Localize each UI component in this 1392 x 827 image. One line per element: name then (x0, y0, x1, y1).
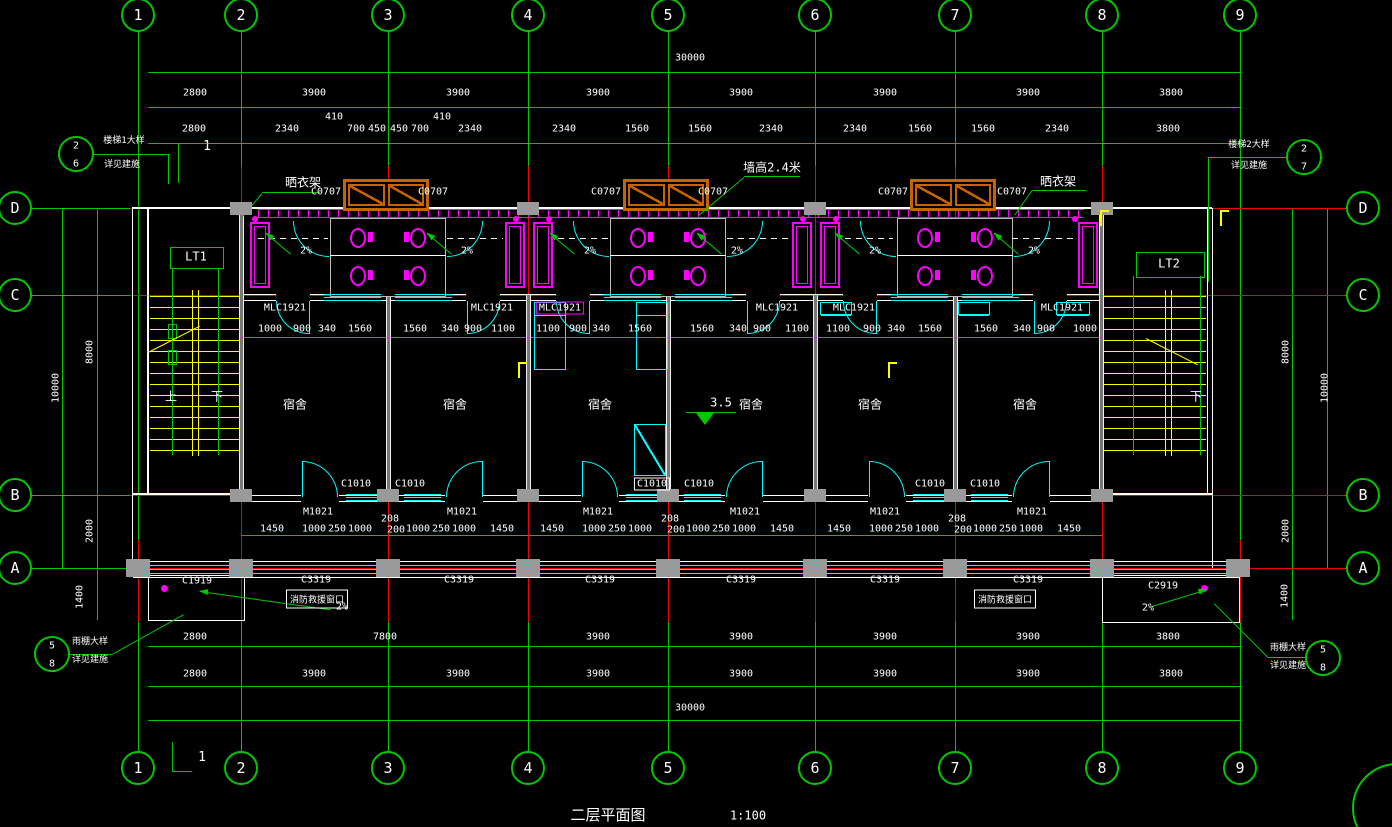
toilet-tank-icon (404, 270, 409, 280)
toilet-tank-icon (971, 232, 976, 242)
stair-label: LT1 (185, 250, 207, 263)
toilet-tank-icon (684, 232, 689, 242)
callout-text: 楼梯1大样 (103, 137, 144, 147)
callout-number: 2 (73, 141, 79, 152)
dim-text: 410 (325, 112, 343, 123)
dim-text: 3900 (873, 632, 897, 643)
slope-label: 2% (584, 246, 596, 257)
drying-rack-label: 晒衣架 (1040, 175, 1076, 188)
column (944, 489, 966, 502)
section-mark-line (178, 143, 198, 144)
dim-tick (528, 101, 529, 113)
grid-bubble-bottom-5: 5 (651, 751, 685, 785)
dim-text: 3900 (1016, 632, 1040, 643)
wall-stair-left-south (132, 493, 241, 495)
leader-line (744, 176, 800, 177)
dim-line-total-top (148, 72, 1240, 73)
roof-drain-icon (161, 585, 168, 592)
stair-flight-line (1200, 276, 1201, 455)
room-window-band (971, 494, 1008, 501)
callout-sheet: 8 (1320, 663, 1326, 674)
column (803, 559, 827, 577)
dim-text: 3800 (1156, 632, 1180, 643)
dim-text: 1560 (628, 324, 652, 335)
window-tag: C3319 (870, 575, 900, 586)
high-window-pair (623, 179, 709, 211)
dim-text: 10000 (51, 373, 62, 403)
wall-height-label: 墙高2.4米 (743, 161, 801, 174)
toilet-icon (690, 266, 706, 286)
dim-text: 340 (441, 324, 459, 335)
column (229, 559, 253, 577)
dim-text: 1560 (908, 124, 932, 135)
window-tag: C0707 (418, 187, 448, 198)
dim-line-total-bottom (148, 720, 1240, 721)
slope-label: 2% (1142, 603, 1154, 614)
dim-text: 8000 (1281, 340, 1292, 364)
door-leaf (747, 301, 748, 334)
window-tag: C3319 (726, 575, 756, 586)
dim-text: 340 (1013, 324, 1031, 335)
toilet-icon (977, 266, 993, 286)
dim-tick (815, 137, 816, 149)
dim-text: 3800 (1156, 124, 1180, 135)
grid-bubble-bottom-7: 7 (938, 751, 972, 785)
drain-dot-icon (252, 216, 258, 222)
grid-bubble-bottom-2: 2 (224, 751, 258, 785)
slope-label: 2% (1028, 246, 1040, 257)
drain-dot-icon (513, 216, 519, 222)
dim-text: 1000 (732, 524, 756, 535)
room-label-dorm: 宿舍 (443, 398, 467, 411)
dim-tick (1240, 101, 1241, 113)
grid-bubble-left-C: C (0, 278, 32, 312)
door-tag: M1021 (870, 507, 900, 518)
shower-cabinet (1078, 222, 1098, 288)
column (377, 489, 399, 502)
dim-line-top-detail (148, 143, 1240, 144)
dim-tick (388, 680, 389, 692)
dim-text: 3900 (586, 669, 610, 680)
window-cell-icon (915, 184, 952, 206)
grid-bubble-bottom-3: 3 (371, 751, 405, 785)
room-window-band (404, 494, 441, 501)
dim-text: 3900 (446, 88, 470, 99)
dim-text: 1100 (491, 324, 515, 335)
grid-bubble-left-D: D (0, 191, 32, 225)
column (1090, 559, 1114, 577)
dim-text: 900 (464, 324, 482, 335)
dim-tick (138, 101, 139, 113)
door-swing-arc (446, 461, 482, 497)
dim-tick (528, 680, 529, 692)
stair-down-label: 下 (211, 390, 223, 403)
door-tag: M1021 (447, 507, 477, 518)
dim-text: 900 (293, 324, 311, 335)
window-tag: C1010 (684, 479, 714, 490)
corner-flashing-icon (888, 362, 897, 378)
axis-red-col-1 (138, 540, 139, 622)
door-leaf (1049, 461, 1050, 497)
dim-text: 1000 (1073, 324, 1097, 335)
balcony-dashed-line (447, 238, 503, 239)
high-window-pair (343, 179, 429, 211)
dim-text: 1000 (452, 524, 476, 535)
dim-text: 3900 (586, 632, 610, 643)
dim-text: 3800 (1159, 88, 1183, 99)
window-tag: C3319 (1013, 575, 1043, 586)
slope-arrow-icon (550, 233, 575, 254)
column (1091, 489, 1113, 502)
dim-text: 3900 (873, 669, 897, 680)
dim-text: 208 (948, 514, 966, 525)
dim-text: 1000 (869, 524, 893, 535)
door-tag: M1021 (583, 507, 613, 518)
dim-text: 1100 (536, 324, 560, 335)
corner-detail-bubble (1352, 763, 1392, 827)
window-tag: MLC1921 (833, 303, 875, 314)
toilet-icon (630, 266, 646, 286)
dim-line-top-bays (148, 107, 1240, 108)
window-tag: C1010 (915, 479, 945, 490)
dim-tick (1240, 680, 1241, 692)
dim-tick (668, 680, 669, 692)
dim-text: 700 (347, 124, 365, 135)
grid-bubble-bottom-8: 8 (1085, 751, 1119, 785)
column (516, 559, 540, 577)
stair-flight-line (1133, 276, 1134, 455)
dim-tick (955, 680, 956, 692)
dim-text: 1000 (348, 524, 372, 535)
dim-text: 2800 (183, 88, 207, 99)
dim-text: 450 (368, 124, 386, 135)
dim-text: 3900 (302, 669, 326, 680)
window-tag: MLC1921 (1041, 303, 1083, 314)
balcony-dashed-line (727, 238, 789, 239)
dim-text: 340 (318, 324, 336, 335)
stair-rail-left (192, 290, 199, 456)
dim-text: 1000 (406, 524, 430, 535)
dim-text: 8000 (85, 340, 96, 364)
door-leaf (1034, 301, 1035, 334)
toilet-tank-icon (648, 232, 653, 242)
window-tag: C1010 (634, 478, 670, 491)
dim-text: 1000 (915, 524, 939, 535)
door-swing-arc (582, 461, 618, 497)
dim-tick (668, 137, 669, 149)
dim-text: 1560 (971, 124, 995, 135)
toilet-tank-icon (935, 232, 940, 242)
grid-bubble-top-2: 2 (224, 0, 258, 32)
dim-text: 2340 (843, 124, 867, 135)
door-leaf (869, 461, 870, 497)
callout-text: 雨棚大样 (72, 638, 108, 648)
window-tag: C3319 (301, 575, 331, 586)
door-swing-arc (869, 461, 905, 497)
dim-text-total: 30000 (675, 53, 705, 64)
toilet-icon (350, 228, 366, 248)
dim-text: 1560 (918, 324, 942, 335)
drain-dot-icon (800, 216, 806, 222)
dim-text: 1400 (1280, 584, 1291, 608)
dim-tick (668, 101, 669, 113)
callout-sheet: 8 (49, 659, 55, 670)
dim-text: 1560 (625, 124, 649, 135)
dim-text: 3800 (1159, 669, 1183, 680)
callout-number: 2 (1301, 144, 1307, 155)
fire-rescue-window-label: 消防救援窗口 (974, 590, 1036, 609)
window-tag: C1919 (182, 576, 212, 587)
dim-text: 410 (433, 112, 451, 123)
floor-plan-canvas: 1 2 3 4 5 6 7 8 9 1 2 3 4 5 6 7 8 9 D C … (0, 0, 1392, 827)
wall-stair-right-south (1102, 493, 1213, 495)
stair-rail-right (1165, 290, 1172, 456)
dim-text: 1000 (628, 524, 652, 535)
corner-flashing-icon (1100, 210, 1109, 226)
callout-number: 5 (1320, 645, 1326, 656)
column (804, 489, 826, 502)
toilet-tank-icon (368, 270, 373, 280)
door-leaf (589, 301, 590, 334)
column (376, 559, 400, 577)
window-tag: MLC1921 (536, 302, 584, 315)
toilet-room-divider (897, 255, 1013, 256)
combo-window-band (324, 294, 381, 301)
grid-bubble-top-7: 7 (938, 0, 972, 32)
toilet-tank-icon (368, 232, 373, 242)
window-tag: MLC1921 (756, 303, 798, 314)
window-tag: MLC1921 (264, 303, 306, 314)
column (1226, 559, 1250, 577)
grid-bubble-top-5: 5 (651, 0, 685, 32)
dim-text: 10000 (1320, 373, 1331, 403)
dim-line-left-inner (97, 208, 98, 620)
combo-window-band (604, 294, 661, 301)
toilet-room (610, 218, 726, 297)
door-tag: M1021 (730, 507, 760, 518)
toilet-tank-icon (684, 270, 689, 280)
door-swing-arc (1013, 461, 1049, 497)
callout-text: 详见建施 (72, 656, 108, 666)
wall-east-outer (1212, 208, 1213, 568)
wall-col-6 (813, 295, 818, 495)
dim-text: 3900 (729, 88, 753, 99)
level-marker-icon (696, 413, 714, 425)
grid-bubble-top-6: 6 (798, 0, 832, 32)
corner-flashing-icon (1220, 210, 1229, 226)
fire-rescue-window-label: 消防救援窗口 (286, 590, 348, 609)
window-tag: C3319 (444, 575, 474, 586)
dim-tick (815, 680, 816, 692)
door-leaf (482, 461, 483, 497)
grid-bubble-top-4: 4 (511, 0, 545, 32)
dim-text: 340 (729, 324, 747, 335)
window-tag: C0707 (591, 187, 621, 198)
grid-bubble-left-B: B (0, 478, 32, 512)
grid-bubble-right-B: B (1346, 478, 1380, 512)
dim-text: 250 (895, 524, 913, 535)
dim-tick (388, 101, 389, 113)
door-tag: M1021 (1017, 507, 1047, 518)
room-label-dorm: 宿舍 (1013, 398, 1037, 411)
dim-text: 450 (390, 124, 408, 135)
dim-text: 208 (661, 514, 679, 525)
dim-text: 1000 (973, 524, 997, 535)
dim-line-window-row (241, 337, 1102, 338)
grid-bubble-right-D: D (1346, 191, 1380, 225)
drain-dot-icon (1072, 216, 1078, 222)
grid-bubble-top-8: 8 (1085, 0, 1119, 32)
corner-flashing-icon (518, 362, 527, 378)
stair-flight-line (218, 268, 219, 455)
dim-text: 1560 (688, 124, 712, 135)
dim-text: 900 (753, 324, 771, 335)
dim-text: 1450 (827, 524, 851, 535)
window-tag: C0707 (698, 187, 728, 198)
pillow-icon (958, 302, 990, 315)
toilet-icon (410, 228, 426, 248)
dim-text: 250 (712, 524, 730, 535)
bed-icon (636, 302, 668, 370)
grid-bubble-bottom-6: 6 (798, 751, 832, 785)
dim-line-left-outer (62, 208, 63, 568)
slope-label: 2% (869, 246, 881, 257)
callout-number: 5 (49, 641, 55, 652)
grid-bubble-bottom-9: 9 (1223, 751, 1257, 785)
stair-down-label: 下 (1190, 390, 1202, 403)
dim-line-right-inner (1292, 208, 1293, 620)
dim-text: 1560 (403, 324, 427, 335)
corridor-ribbon-window (133, 561, 1240, 578)
slope-label: 2% (731, 246, 743, 257)
window-tag: C1010 (970, 479, 1000, 490)
dim-tick (955, 101, 956, 113)
stair-up-label: 上 (165, 390, 177, 403)
column (656, 559, 680, 577)
toilet-tank-icon (971, 270, 976, 280)
dim-text: 1450 (490, 524, 514, 535)
room-window-band (684, 494, 721, 501)
grid-bubble-top-9: 9 (1223, 0, 1257, 32)
dim-text: 1100 (785, 324, 809, 335)
grid-bubble-bottom-1: 1 (121, 751, 155, 785)
window-tag: C2919 (1148, 581, 1178, 592)
section-mark-number: 1 (203, 140, 211, 154)
dim-text: 900 (863, 324, 881, 335)
dim-text: 1560 (690, 324, 714, 335)
callout-sheet: 6 (73, 159, 79, 170)
slope-label: 2% (461, 246, 473, 257)
wall-col-4 (526, 295, 531, 495)
section-mark-line (172, 742, 173, 772)
door-swing-arc (726, 461, 762, 497)
window-cell-icon (348, 184, 385, 206)
dim-text: 1560 (348, 324, 372, 335)
dim-text: 2000 (85, 519, 96, 543)
dim-text: 1450 (260, 524, 284, 535)
room-label-dorm: 宿舍 (283, 398, 307, 411)
stair-arrow-mark (168, 350, 177, 365)
room-label-dorm: 宿舍 (858, 398, 882, 411)
drawing-title: 二层平面图 (570, 807, 645, 824)
toilet-icon (350, 266, 366, 286)
wardrobe-icon (634, 424, 666, 476)
dim-text: 2000 (1281, 519, 1292, 543)
dim-text: 250 (999, 524, 1017, 535)
column (943, 559, 967, 577)
drain-dot-icon (833, 216, 839, 222)
dim-text: 3900 (729, 632, 753, 643)
dim-text: 208 (381, 514, 399, 525)
dim-tick (1102, 137, 1103, 149)
toilet-room-divider (330, 255, 446, 256)
dim-text: 3900 (1016, 669, 1040, 680)
grid-bubble-top-3: 3 (371, 0, 405, 32)
window-cell-icon (955, 184, 992, 206)
column (517, 489, 539, 502)
toilet-icon (917, 228, 933, 248)
dim-text: 2340 (1045, 124, 1069, 135)
drying-rack-label: 晒衣架 (285, 176, 321, 189)
dim-tick (955, 137, 956, 149)
dim-text: 1000 (1019, 524, 1043, 535)
dim-text: 1450 (540, 524, 564, 535)
balcony-dashed-line (1012, 238, 1074, 239)
door-swing-arc (302, 461, 338, 497)
callout-text: 详见建施 (104, 161, 140, 171)
dim-line-bottom-1 (148, 646, 1240, 647)
door-leaf (582, 461, 583, 497)
dim-text: 3900 (302, 88, 326, 99)
section-mark-number: 1 (198, 751, 206, 765)
dim-text: 250 (608, 524, 626, 535)
dim-text: 2800 (182, 124, 206, 135)
dim-text: 200 (954, 525, 972, 536)
dim-text: 1450 (1057, 524, 1081, 535)
grid-bubble-right-C: C (1346, 278, 1380, 312)
window-cell-icon (628, 184, 665, 206)
dim-tick (1102, 680, 1103, 692)
combo-window-band (395, 294, 452, 301)
dim-text: 200 (667, 525, 685, 536)
door-tag: M1021 (303, 507, 333, 518)
axis-red-col-9 (1240, 540, 1241, 622)
dim-tick (241, 137, 242, 149)
dim-text: 900 (569, 324, 587, 335)
window-tag: C0707 (878, 187, 908, 198)
callout-leader (1208, 157, 1209, 282)
drawing-scale: 1:100 (730, 809, 766, 822)
dim-tick (388, 137, 389, 149)
toilet-tank-icon (648, 270, 653, 280)
dim-line-bottom-2 (148, 686, 1240, 687)
dim-text: 700 (411, 124, 429, 135)
toilet-room-divider (610, 255, 726, 256)
column (804, 202, 826, 215)
column (657, 489, 679, 502)
section-mark-line (172, 771, 192, 772)
dim-text: 1450 (770, 524, 794, 535)
column (126, 559, 150, 577)
dim-tick (241, 680, 242, 692)
level-value: 3.5 (710, 396, 732, 409)
high-window-pair (910, 179, 996, 211)
dim-text: 1400 (75, 585, 86, 609)
leader-line (1032, 190, 1086, 191)
grid-bubble-bottom-4: 4 (511, 751, 545, 785)
combo-window-band (675, 294, 732, 301)
dim-tick (815, 101, 816, 113)
